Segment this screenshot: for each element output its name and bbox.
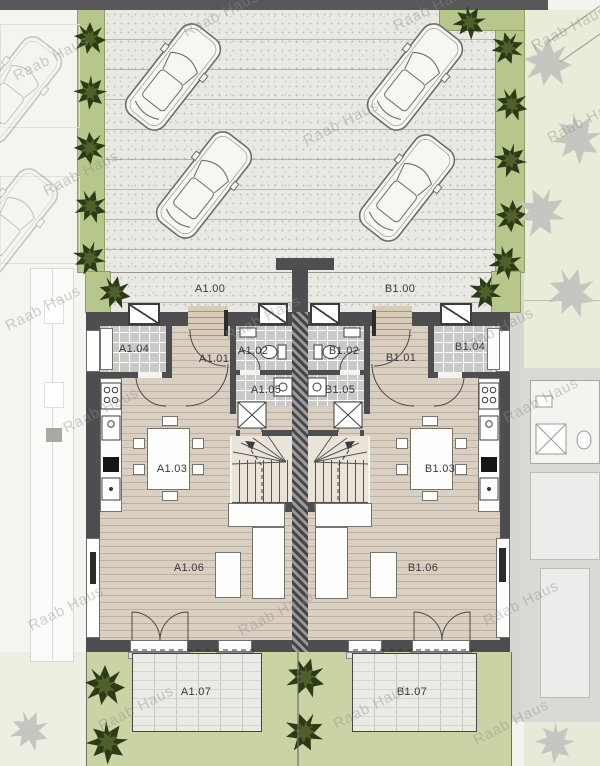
dining-table-b — [410, 428, 453, 490]
chair — [133, 438, 145, 449]
terrace-door-b — [412, 640, 470, 652]
window-bottom-b — [348, 640, 382, 652]
kitchen-counter-b — [478, 378, 500, 512]
radiator-a — [90, 552, 96, 584]
room-label-b1-01: B1.01 — [386, 352, 416, 364]
chair — [162, 416, 178, 426]
room-label-a1-02: A1.02 — [238, 345, 268, 357]
room-label-a1-03: A1.03 — [157, 463, 187, 475]
room-label-b1-02: B1.02 — [329, 345, 359, 357]
terrace-door-a — [130, 640, 188, 652]
chair — [133, 464, 145, 475]
right-neighbor-room-1 — [530, 472, 600, 560]
chair — [396, 464, 408, 475]
left-neighbor-parking-1 — [0, 24, 80, 128]
sofa-a-top — [228, 503, 285, 527]
room-label-a1-00: A1.00 — [195, 283, 225, 295]
entrance-steps-a — [188, 306, 228, 338]
chair — [162, 491, 178, 501]
wall-b — [308, 370, 340, 375]
room-label-b1-04: B1.04 — [455, 341, 485, 353]
window-a1-04 — [128, 303, 160, 325]
room-label-a1-05: A1.05 — [251, 384, 281, 396]
left-neighbor-parking-2 — [0, 176, 80, 264]
room-label-a1-06: A1.06 — [174, 562, 204, 574]
planting-strip-left — [78, 10, 104, 272]
dining-table-a — [147, 428, 190, 490]
kitchen-counter-a — [100, 378, 122, 512]
planting-strip-right — [496, 10, 524, 272]
right-lawn-bottom — [524, 722, 600, 766]
right-neighbor-bath — [530, 380, 600, 464]
window-b1-02 — [310, 303, 340, 325]
left-neighbor-appliance — [46, 428, 62, 442]
stairs-a-treads — [232, 460, 292, 502]
site-floor-plan: A1.00 B1.00 A1.04 B1.04 A1.01 B1.01 A1.0… — [0, 0, 600, 766]
entrance-steps-b — [372, 306, 412, 338]
radiator-b — [499, 548, 506, 582]
room-label-b1-06: B1.06 — [408, 562, 438, 574]
room-label-a1-04: A1.04 — [119, 343, 149, 355]
planting-patch-right — [492, 272, 520, 312]
wall-a — [162, 372, 172, 378]
chair — [192, 464, 204, 475]
right-lawn — [524, 10, 600, 368]
chair — [455, 464, 467, 475]
chair — [396, 438, 408, 449]
entry-door-leaf-b — [372, 310, 376, 336]
left-neighbor-sink — [44, 382, 64, 408]
wardrobe-a1-04 — [100, 328, 113, 370]
room-label-a1-07: A1.07 — [181, 686, 211, 698]
entry-door-leaf-a — [224, 310, 228, 336]
window-left-a1-04 — [86, 330, 100, 372]
left-neighbor-stove — [44, 300, 64, 324]
chair — [192, 438, 204, 449]
left-neighbor-wall — [52, 268, 53, 660]
sofa-b-top — [315, 503, 372, 527]
coffee-table-b — [370, 552, 397, 598]
room-label-a1-01: A1.01 — [199, 353, 229, 365]
wall-b — [428, 326, 434, 376]
wall-b — [364, 326, 370, 414]
chair — [455, 438, 467, 449]
right-neighbor-room-2 — [540, 568, 590, 698]
room-label-b1-07: B1.07 — [397, 686, 427, 698]
wardrobe-b1-04 — [487, 328, 500, 370]
kitchen-appliance-a — [103, 457, 119, 472]
planting-strip-corner — [440, 10, 524, 30]
road-bar — [0, 0, 548, 10]
window-bottom-a — [218, 640, 252, 652]
kitchen-appliance-b — [481, 457, 497, 472]
party-wall-stub — [292, 258, 308, 314]
window-a1-02 — [258, 303, 288, 325]
chair — [422, 416, 438, 426]
stairs-b-treads — [308, 460, 368, 502]
room-label-b1-05: B1.05 — [325, 384, 355, 396]
sofa-b-side — [315, 527, 348, 599]
parking-court — [104, 10, 496, 272]
wall-a — [236, 370, 240, 375]
wall-b — [428, 372, 438, 378]
sofa-a-side — [252, 527, 285, 599]
left-lawn-bottom — [0, 652, 86, 766]
wall-b — [360, 370, 364, 375]
party-wall — [292, 312, 308, 652]
wall-a — [260, 370, 292, 375]
room-label-b1-03: B1.03 — [425, 463, 455, 475]
chair — [422, 491, 438, 501]
coffee-table-a — [215, 552, 241, 598]
wall-a — [166, 326, 172, 376]
window-b1-04 — [440, 303, 472, 325]
planting-patch-left — [86, 272, 110, 312]
room-label-b1-00: B1.00 — [385, 283, 415, 295]
right-boundary-line — [524, 300, 600, 301]
